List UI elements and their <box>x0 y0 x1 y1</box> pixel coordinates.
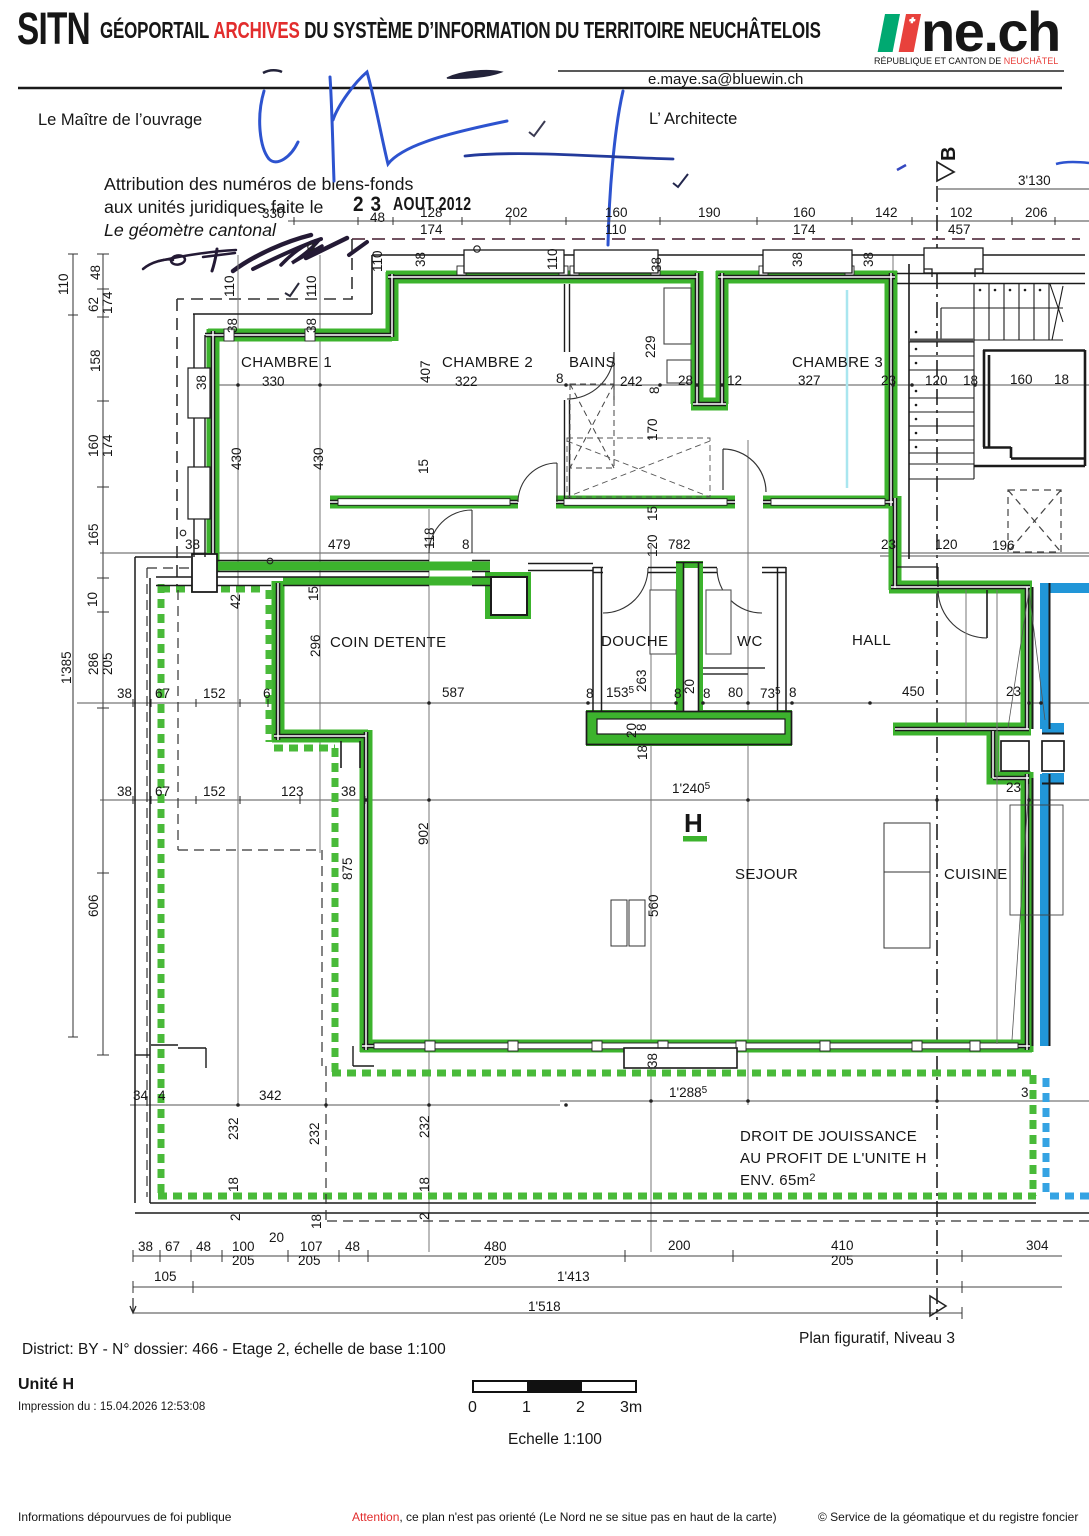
svg-text:202: 202 <box>505 205 528 220</box>
svg-text:304: 304 <box>1026 1238 1049 1253</box>
svg-text:4: 4 <box>158 1088 166 1103</box>
svg-text:120: 120 <box>925 373 948 388</box>
svg-text:410: 410 <box>831 1238 854 1253</box>
svg-text:23: 23 <box>1006 684 1021 699</box>
svg-text:205: 205 <box>232 1253 255 1268</box>
svg-text:48: 48 <box>88 265 103 280</box>
svg-text:H: H <box>684 808 703 838</box>
svg-text:165: 165 <box>86 523 101 546</box>
svg-text:875: 875 <box>340 857 355 880</box>
svg-text:205: 205 <box>831 1253 854 1268</box>
svg-text:606: 606 <box>86 894 101 917</box>
svg-text:142: 142 <box>875 205 898 220</box>
svg-text:ne.ch: ne.ch <box>921 0 1060 63</box>
svg-text:12: 12 <box>727 373 742 388</box>
svg-text:8: 8 <box>674 686 682 701</box>
svg-text:107: 107 <box>300 1239 323 1254</box>
svg-text:15: 15 <box>645 506 660 521</box>
svg-text:105: 105 <box>154 1269 177 1284</box>
svg-text:110: 110 <box>222 275 237 297</box>
svg-text:206: 206 <box>1025 205 1048 220</box>
svg-text:Unité H: Unité H <box>18 1376 74 1393</box>
svg-text:DROIT DE JOUISSANCE: DROIT DE JOUISSANCE <box>740 1128 917 1145</box>
svg-text:8: 8 <box>462 537 470 552</box>
svg-text:20: 20 <box>269 1230 284 1245</box>
svg-text:205: 205 <box>100 652 115 675</box>
svg-text:67: 67 <box>165 1239 180 1254</box>
svg-text:120: 120 <box>935 537 958 552</box>
svg-text:10: 10 <box>85 592 100 607</box>
svg-text:34: 34 <box>133 1088 149 1103</box>
svg-text:CHAMBRE 3: CHAMBRE 3 <box>792 354 883 371</box>
svg-text:aux unités juridiques faite le: aux unités juridiques faite le <box>104 197 324 217</box>
svg-text:152: 152 <box>203 686 226 701</box>
svg-text:Attention, ce plan n'est pas o: Attention, ce plan n'est pas orienté (Le… <box>352 1510 777 1524</box>
svg-text:322: 322 <box>455 374 478 389</box>
svg-text:District: BY - N° dossier: 466: District: BY - N° dossier: 466 - Etage 2… <box>22 1341 446 1358</box>
svg-text:327: 327 <box>798 373 821 388</box>
svg-text:28: 28 <box>678 373 693 388</box>
svg-text:48: 48 <box>196 1239 211 1254</box>
svg-text:38: 38 <box>645 1053 660 1068</box>
svg-text:18: 18 <box>417 1177 432 1192</box>
svg-text:3m: 3m <box>620 1399 642 1416</box>
svg-text:62: 62 <box>86 297 101 312</box>
svg-text:CHAMBRE 1: CHAMBRE 1 <box>241 354 332 371</box>
svg-text:38: 38 <box>194 375 209 390</box>
svg-text:1'413: 1'413 <box>557 1269 590 1284</box>
svg-text:430: 430 <box>311 447 326 470</box>
svg-text:296: 296 <box>308 634 323 657</box>
svg-text:6: 6 <box>263 686 271 701</box>
svg-text:902: 902 <box>416 822 431 845</box>
svg-text:479: 479 <box>328 537 351 552</box>
svg-text:20: 20 <box>624 723 639 738</box>
svg-text:450: 450 <box>902 684 925 699</box>
svg-text:15: 15 <box>306 586 321 601</box>
svg-text:2: 2 <box>576 1399 585 1416</box>
svg-text:1: 1 <box>522 1399 531 1416</box>
svg-text:782: 782 <box>668 537 691 552</box>
svg-text:15: 15 <box>416 459 431 474</box>
svg-text:20: 20 <box>682 679 697 694</box>
svg-text:1'518: 1'518 <box>528 1299 561 1314</box>
svg-text:242: 242 <box>620 374 643 389</box>
svg-text:18: 18 <box>1054 372 1069 387</box>
svg-text:Le géomètre cantonal: Le géomètre cantonal <box>104 220 277 240</box>
svg-text:170: 170 <box>645 418 660 441</box>
svg-text:263: 263 <box>634 669 649 692</box>
svg-text:WC: WC <box>737 633 763 650</box>
svg-text:160: 160 <box>86 434 101 457</box>
svg-text:174: 174 <box>100 291 115 314</box>
svg-text:330: 330 <box>262 374 285 389</box>
svg-text:18: 18 <box>635 745 650 760</box>
svg-text:38: 38 <box>225 318 240 333</box>
svg-text:2: 2 <box>228 1213 243 1221</box>
svg-text:38: 38 <box>138 1239 153 1254</box>
svg-text:330: 330 <box>262 206 285 221</box>
svg-text:80: 80 <box>728 685 743 700</box>
svg-text:8: 8 <box>556 371 564 386</box>
svg-text:67: 67 <box>155 686 170 701</box>
svg-text:© Service de la géomatique et: © Service de la géomatique et du registr… <box>818 1510 1078 1524</box>
svg-text:23: 23 <box>881 537 896 552</box>
svg-text:160: 160 <box>605 205 628 220</box>
svg-text:232: 232 <box>307 1122 322 1145</box>
svg-text:67: 67 <box>155 784 170 799</box>
svg-text:8: 8 <box>586 686 594 701</box>
svg-text:18: 18 <box>309 1214 324 1229</box>
svg-text:120: 120 <box>645 534 660 557</box>
svg-text:38: 38 <box>649 257 664 272</box>
svg-text:AU PROFIT DE L'UNITE H: AU PROFIT DE L'UNITE H <box>740 1150 927 1167</box>
svg-text:457: 457 <box>948 222 971 237</box>
svg-text:190: 190 <box>698 205 721 220</box>
svg-text:158: 158 <box>88 349 103 372</box>
svg-text:GÉOPORTAIL ARCHIVES DU SYSTÈME: GÉOPORTAIL ARCHIVES DU SYSTÈME D’INFORMA… <box>100 16 821 43</box>
svg-text:286: 286 <box>86 652 101 675</box>
svg-text:0: 0 <box>468 1399 477 1416</box>
svg-text:18: 18 <box>226 1177 241 1192</box>
svg-text:342: 342 <box>259 1088 282 1103</box>
svg-text:Impression du : 15.04.2026 12:: Impression du : 15.04.2026 12:53:08 <box>18 1401 205 1413</box>
svg-text:Echelle 1:100: Echelle 1:100 <box>508 1431 602 1448</box>
svg-text:Attribution des numéros de bie: Attribution des numéros de biens-fonds <box>104 174 413 194</box>
svg-text:480: 480 <box>484 1239 507 1254</box>
svg-text:Plan figuratif, Niveau 3: Plan figuratif, Niveau 3 <box>799 1330 955 1347</box>
svg-text:200: 200 <box>668 1238 691 1253</box>
svg-text:38: 38 <box>185 537 200 552</box>
svg-text:23: 23 <box>1006 780 1021 795</box>
svg-text:152: 152 <box>203 784 226 799</box>
svg-text:B: B <box>938 147 960 161</box>
svg-text:232: 232 <box>417 1115 432 1138</box>
svg-text:407: 407 <box>418 360 433 383</box>
svg-text:38: 38 <box>790 252 805 267</box>
svg-text:ENV. 65m2: ENV. 65m2 <box>740 1172 816 1189</box>
svg-text:CHAMBRE 2: CHAMBRE 2 <box>442 354 533 371</box>
svg-text:SITN: SITN <box>17 4 90 54</box>
svg-text:48: 48 <box>345 1239 360 1254</box>
svg-text:SEJOUR: SEJOUR <box>735 866 798 883</box>
svg-text:560: 560 <box>646 894 661 917</box>
svg-text:587: 587 <box>442 685 465 700</box>
svg-text:CUISINE: CUISINE <box>944 866 1008 883</box>
svg-text:110: 110 <box>56 273 71 295</box>
svg-text:1'385: 1'385 <box>59 651 74 684</box>
svg-text:38: 38 <box>341 784 356 799</box>
svg-text:174: 174 <box>100 434 115 457</box>
svg-text:8: 8 <box>789 685 797 700</box>
svg-text:8: 8 <box>703 686 711 701</box>
svg-text:Le Maître de l’ouvrage: Le Maître de l’ouvrage <box>38 111 202 129</box>
svg-text:232: 232 <box>226 1117 241 1140</box>
svg-text:Informations dépourvues de foi: Informations dépourvues de foi publique <box>18 1510 232 1524</box>
svg-text:38: 38 <box>304 318 319 333</box>
svg-text:205: 205 <box>484 1253 507 1268</box>
svg-text:DOUCHE: DOUCHE <box>601 633 668 650</box>
svg-text:3'130: 3'130 <box>1018 173 1051 188</box>
svg-text:COIN DETENTE: COIN DETENTE <box>330 634 446 651</box>
svg-text:102: 102 <box>950 205 973 220</box>
svg-text:196: 196 <box>992 538 1015 553</box>
svg-text:160: 160 <box>1010 372 1033 387</box>
svg-text:38: 38 <box>117 686 132 701</box>
svg-text:100: 100 <box>232 1239 255 1254</box>
svg-text:38: 38 <box>117 784 132 799</box>
svg-text:38: 38 <box>861 252 876 267</box>
svg-text:38: 38 <box>413 252 428 267</box>
svg-text:L’ Architecte: L’ Architecte <box>649 110 737 128</box>
svg-text:110: 110 <box>545 248 560 270</box>
svg-text:160: 160 <box>793 205 816 220</box>
svg-text:128: 128 <box>420 205 443 220</box>
svg-text:48: 48 <box>370 210 385 225</box>
svg-text:8: 8 <box>647 386 662 394</box>
svg-text:BAINS: BAINS <box>569 354 616 371</box>
svg-text:174: 174 <box>420 222 443 237</box>
svg-text:110: 110 <box>605 222 627 237</box>
svg-text:229: 229 <box>643 335 658 358</box>
svg-text:430: 430 <box>229 447 244 470</box>
svg-text:3: 3 <box>1021 1085 1029 1100</box>
svg-text:110: 110 <box>370 250 385 272</box>
svg-text:e.maye.sa@bluewin.ch: e.maye.sa@bluewin.ch <box>648 71 803 88</box>
svg-text:118: 118 <box>422 527 437 549</box>
svg-text:HALL: HALL <box>852 632 891 649</box>
svg-text:174: 174 <box>793 222 816 237</box>
svg-text:110: 110 <box>304 275 319 297</box>
svg-text:205: 205 <box>298 1253 321 1268</box>
svg-text:2: 2 <box>417 1212 432 1220</box>
svg-text:42: 42 <box>228 594 243 609</box>
svg-text:RÉPUBLIQUE ET CANTON DE NEUCHÂ: RÉPUBLIQUE ET CANTON DE NEUCHÂTEL <box>874 56 1058 66</box>
